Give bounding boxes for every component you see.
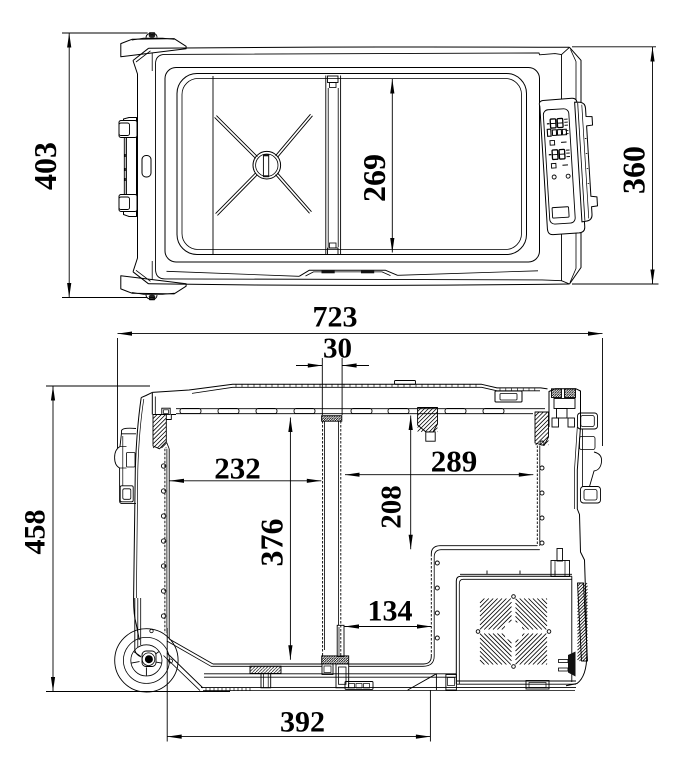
svg-text:403: 403 <box>27 142 63 190</box>
svg-text:208: 208 <box>376 485 408 529</box>
svg-text:134: 134 <box>368 595 413 628</box>
svg-text:376: 376 <box>254 519 290 567</box>
svg-text:232: 232 <box>214 451 261 486</box>
svg-text:269: 269 <box>356 154 392 202</box>
svg-text:360: 360 <box>616 146 652 194</box>
svg-text:392: 392 <box>280 706 325 739</box>
svg-text:289: 289 <box>431 444 478 479</box>
svg-text:723: 723 <box>313 301 358 334</box>
svg-text:458: 458 <box>19 510 52 555</box>
svg-text:30: 30 <box>323 333 352 365</box>
